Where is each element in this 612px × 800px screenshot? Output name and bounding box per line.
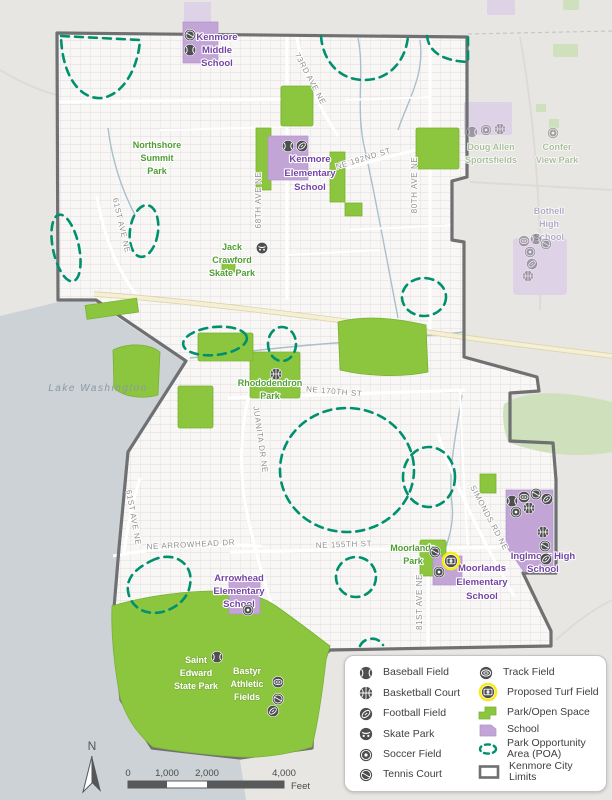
park-label: Park bbox=[260, 391, 281, 401]
scale-tick: 1,000 bbox=[155, 768, 179, 779]
street-label: 81ST AVE NE bbox=[415, 574, 424, 630]
park-label: View Park bbox=[536, 155, 579, 165]
legend-row-proposed-turf: Proposed Turf Field bbox=[478, 682, 600, 702]
legend-label: Area (POA) bbox=[507, 749, 586, 760]
legend-row-track: Track Field bbox=[478, 665, 600, 681]
basketball-icon bbox=[522, 270, 533, 281]
tennis-icon bbox=[540, 238, 551, 249]
legend-row-city-limits: Kenmore City Limits bbox=[478, 761, 600, 783]
school-label: Middle bbox=[202, 45, 232, 56]
scale-tick: 2,000 bbox=[195, 768, 219, 779]
park-label: Moorlands bbox=[390, 543, 436, 553]
soccer-icon bbox=[433, 566, 444, 577]
tennis-icon bbox=[429, 546, 440, 557]
legend-row-school: School bbox=[478, 723, 600, 737]
school-swatch bbox=[478, 723, 498, 737]
legend-row-poa: Park Opportunity Area (POA) bbox=[478, 738, 600, 760]
baseball-icon bbox=[184, 44, 195, 55]
park-label: Crawford bbox=[212, 255, 252, 265]
track-icon bbox=[272, 676, 283, 687]
basketball-icon bbox=[358, 685, 374, 701]
poa-swatch bbox=[478, 742, 498, 756]
school-label: Elementary bbox=[456, 577, 508, 588]
school-label: School bbox=[466, 591, 498, 602]
basketball-icon bbox=[270, 368, 281, 379]
baseball-icon bbox=[530, 233, 541, 244]
park-label: Sportsfields bbox=[465, 155, 517, 165]
park-label: Saint bbox=[185, 655, 207, 665]
legend-label: Kenmore City Limits bbox=[509, 761, 600, 783]
football-icon bbox=[526, 258, 537, 269]
street-label: 68TH AVE NE bbox=[254, 172, 263, 229]
legend-row-football: Football Field bbox=[358, 706, 478, 722]
scale-tick: 4,000 bbox=[272, 768, 296, 779]
legend-row-tennis: Tennis Court bbox=[358, 767, 478, 783]
tennis-icon bbox=[358, 767, 374, 783]
city-limits-swatch bbox=[478, 765, 500, 779]
park-label: Edward bbox=[180, 668, 213, 678]
legend-row-skate: Skate Park bbox=[358, 726, 478, 742]
soccer-icon bbox=[358, 747, 374, 763]
legend-row-baseball: Baseball Field bbox=[358, 665, 478, 681]
school-label: Kenmore bbox=[289, 154, 330, 165]
school-label: Moorlands bbox=[458, 563, 506, 574]
park-label: Bastyr bbox=[233, 666, 262, 676]
north-label: N bbox=[88, 739, 97, 753]
school-label: Bothell bbox=[534, 206, 565, 216]
legend-label: Proposed Turf Field bbox=[507, 687, 599, 698]
legend-label: Park/Open Space bbox=[507, 707, 590, 718]
tennis-icon bbox=[530, 488, 541, 499]
football-icon bbox=[358, 706, 374, 722]
park-label: Park bbox=[403, 556, 424, 566]
tennis-icon bbox=[184, 29, 195, 40]
park-swatch bbox=[478, 703, 498, 721]
park-label: Skate Park bbox=[209, 268, 256, 278]
map-page: Lake Washington Northshore Summit Park K… bbox=[0, 0, 612, 800]
baseball-icon bbox=[466, 126, 477, 137]
school-label: Kenmore bbox=[196, 32, 237, 43]
basketball-icon bbox=[537, 526, 548, 537]
school-label: Arrowhead bbox=[214, 573, 264, 584]
skate-icon bbox=[358, 726, 374, 742]
tennis-icon bbox=[272, 693, 283, 704]
legend-row-soccer: Soccer Field bbox=[358, 747, 478, 763]
legend-label: Skate Park bbox=[383, 729, 434, 740]
legend-label: Track Field bbox=[503, 667, 555, 678]
legend-label: Tennis Court bbox=[383, 769, 442, 780]
legend-row-basketball: Basketball Court bbox=[358, 685, 478, 701]
scale-unit: Feet bbox=[291, 781, 310, 792]
legend-right-column: Track Field Proposed Turf Field Park/Ope… bbox=[478, 665, 600, 783]
soccer-icon bbox=[524, 246, 535, 257]
school-label: Elementary bbox=[213, 586, 265, 597]
park-label: Park bbox=[147, 166, 168, 176]
park-label: State Park bbox=[174, 681, 219, 691]
school-label: Elementary bbox=[284, 168, 336, 179]
park-label: Confer bbox=[543, 142, 572, 152]
baseball-icon bbox=[358, 665, 374, 681]
scale-tick: 0 bbox=[125, 768, 130, 779]
baseball-icon bbox=[282, 140, 293, 151]
lake-label: Lake Washington bbox=[48, 383, 148, 394]
basketball-icon bbox=[523, 502, 534, 513]
legend: Baseball Field Basketball Court Football… bbox=[344, 655, 607, 792]
street-label: 80TH AVE NE bbox=[410, 157, 419, 214]
soccer-icon bbox=[242, 604, 253, 615]
legend-row-park-space: Park/Open Space bbox=[478, 703, 600, 721]
park-label: Athletic bbox=[230, 679, 263, 689]
football-icon bbox=[267, 705, 278, 716]
park-label: Rhododendron bbox=[238, 378, 303, 388]
park-label: Fields bbox=[234, 692, 260, 702]
legend-label: Football Field bbox=[383, 708, 446, 719]
soccer-icon bbox=[547, 127, 558, 138]
soccer-icon bbox=[510, 506, 521, 517]
park-label: Summit bbox=[140, 153, 173, 163]
baseball-icon bbox=[211, 651, 222, 662]
legend-label: School bbox=[507, 724, 539, 735]
proposed-turf-icon bbox=[442, 552, 461, 571]
legend-left-column: Baseball Field Basketball Court Football… bbox=[358, 665, 478, 783]
football-icon bbox=[296, 140, 307, 151]
track-icon bbox=[518, 235, 529, 246]
skate-icon bbox=[256, 242, 267, 253]
track-icon bbox=[478, 665, 494, 681]
school-label: School bbox=[527, 564, 559, 575]
school-label: High bbox=[539, 219, 559, 229]
legend-label: Soccer Field bbox=[383, 749, 441, 760]
proposed-turf-icon bbox=[478, 682, 498, 702]
legend-label: Baseball Field bbox=[383, 667, 449, 678]
legend-label: Basketball Court bbox=[383, 688, 460, 699]
track-icon bbox=[518, 491, 529, 502]
school-label: School bbox=[294, 182, 326, 193]
tennis-icon bbox=[539, 540, 550, 551]
soccer-icon bbox=[480, 124, 491, 135]
basketball-icon bbox=[494, 123, 505, 134]
baseball-icon bbox=[506, 495, 517, 506]
park-label: Northshore bbox=[133, 140, 182, 150]
football-icon bbox=[540, 553, 551, 564]
park-label: Jack bbox=[222, 242, 243, 252]
school-label: School bbox=[201, 58, 233, 69]
park-label: Doug Allen bbox=[467, 142, 514, 152]
football-icon bbox=[541, 493, 552, 504]
